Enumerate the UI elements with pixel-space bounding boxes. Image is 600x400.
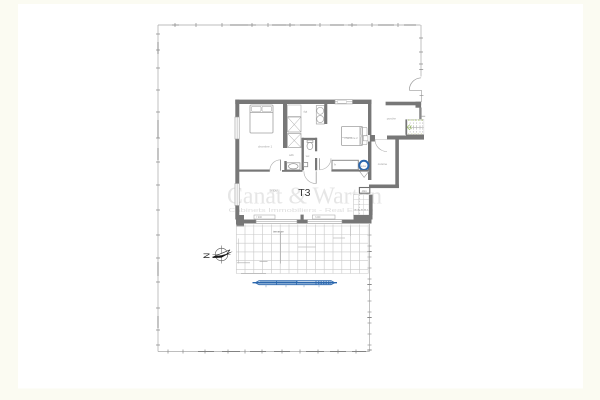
svg-text:clim: clim xyxy=(362,189,368,193)
svg-text:séjour: séjour xyxy=(270,189,280,193)
svg-text:f 240: f 240 xyxy=(257,216,263,219)
svg-text:sdb: sdb xyxy=(289,153,294,157)
svg-text:chambre 1: chambre 1 xyxy=(258,144,273,148)
svg-text:f 240: f 240 xyxy=(315,216,321,219)
svg-text:porche: porche xyxy=(387,117,397,121)
svg-text:T3: T3 xyxy=(298,187,310,199)
svg-text:dgt: dgt xyxy=(304,109,308,113)
svg-text:evier: evier xyxy=(361,164,367,168)
svg-text:chambre 2: chambre 2 xyxy=(345,136,359,140)
svg-text:cuisine: cuisine xyxy=(378,162,388,166)
svg-text:N: N xyxy=(203,253,212,259)
svg-text:wc: wc xyxy=(306,154,310,158)
svg-text:fr: fr xyxy=(334,162,336,166)
svg-text:terrasse: terrasse xyxy=(273,229,284,233)
svg-text:Cabinets Immobiliers - Real Es: Cabinets Immobiliers - Real Estate xyxy=(229,208,374,214)
